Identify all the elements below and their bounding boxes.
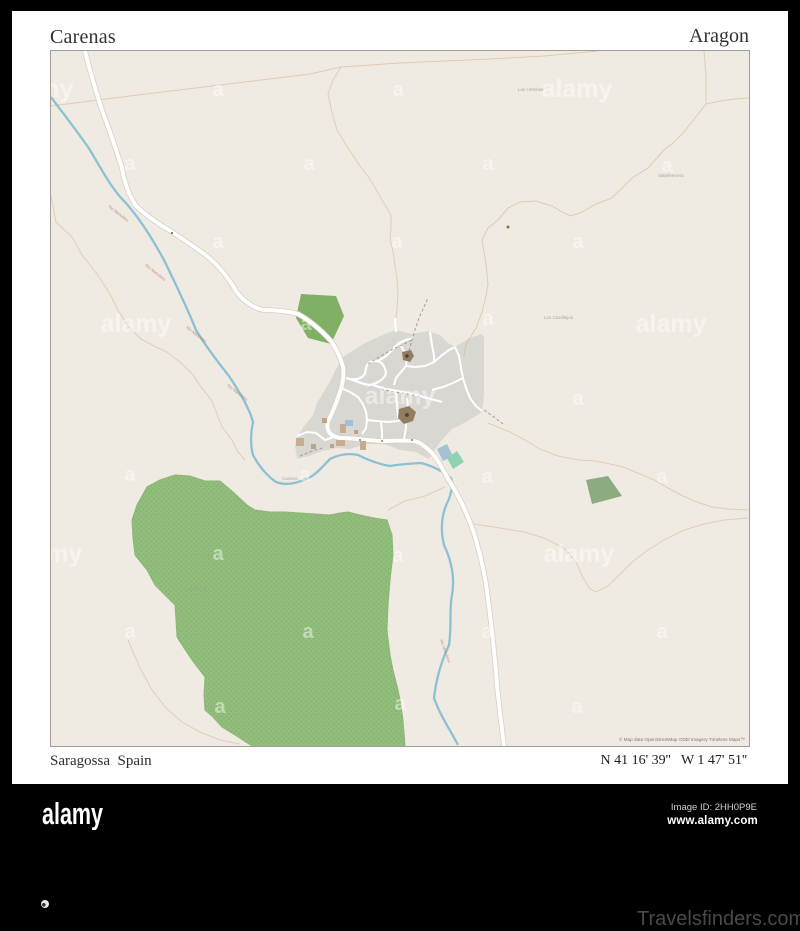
svg-text:a: a — [482, 308, 494, 330]
svg-text:a: a — [656, 466, 668, 488]
svg-text:alamy: alamy — [544, 540, 615, 568]
svg-text:a: a — [299, 464, 311, 486]
svg-text:a: a — [302, 621, 314, 643]
svg-text:alamy: alamy — [365, 382, 436, 410]
svg-text:© Map data OpenStreetMap ODbl: © Map data OpenStreetMap ODbl Imagery Ti… — [619, 736, 745, 742]
svg-text:a: a — [571, 696, 583, 718]
svg-text:Las Umbrias: Las Umbrias — [518, 87, 544, 92]
svg-text:a: a — [392, 79, 404, 101]
svg-text:Camino: Camino — [282, 476, 298, 481]
svg-text:a: a — [661, 155, 673, 177]
svg-text:alamy: alamy — [51, 75, 74, 103]
svg-text:a: a — [394, 693, 406, 715]
svg-text:a: a — [482, 153, 494, 175]
svg-text:a: a — [124, 464, 136, 486]
svg-text:a: a — [214, 696, 226, 718]
svg-text:a: a — [481, 621, 493, 643]
svg-text:a: a — [212, 231, 224, 253]
svg-text:a: a — [124, 621, 136, 643]
svg-text:a: a — [572, 231, 584, 253]
svg-text:a: a — [303, 153, 315, 175]
svg-text:a: a — [481, 466, 493, 488]
svg-text:alamy: alamy — [101, 310, 172, 338]
svg-text:La Dehesa: La Dehesa — [185, 586, 207, 591]
svg-text:a: a — [300, 313, 312, 335]
svg-text:a: a — [212, 543, 224, 565]
svg-text:Los Castillejos: Los Castillejos — [544, 315, 574, 320]
svg-text:a: a — [656, 621, 668, 643]
svg-text:alamy: alamy — [636, 310, 707, 338]
svg-text:a: a — [572, 388, 584, 410]
svg-text:alamy: alamy — [542, 75, 613, 103]
svg-text:alamy: alamy — [51, 540, 83, 568]
svg-text:a: a — [124, 153, 136, 175]
svg-text:a: a — [392, 545, 404, 567]
svg-text:a: a — [391, 231, 403, 253]
svg-text:alamy: alamy — [42, 798, 104, 830]
svg-text:a: a — [212, 79, 224, 101]
